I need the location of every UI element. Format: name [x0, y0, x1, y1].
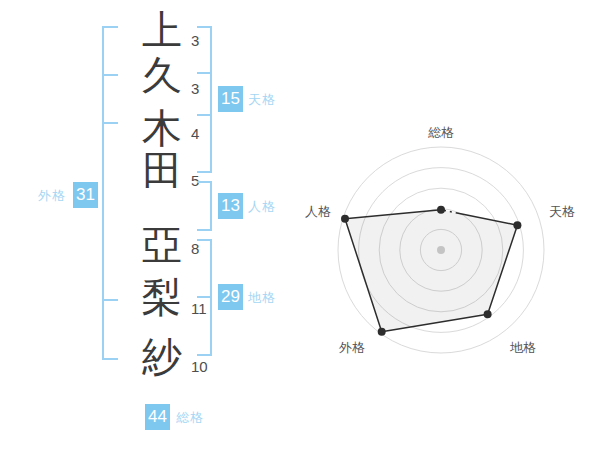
radar-axis-label: 外格: [338, 340, 365, 355]
radar-data-point: [378, 328, 386, 336]
radar-data-fill: [345, 210, 517, 332]
radar-axis-label: 地格: [510, 340, 536, 355]
radar-axis-label: 総格: [428, 125, 454, 140]
fortune-radar-chart: 総格天格地格外格人格: [0, 0, 600, 470]
radar-data-point: [437, 206, 445, 214]
radar-axis-label: 天格: [549, 204, 575, 219]
radar-data-point: [484, 310, 492, 318]
radar-data-point: [513, 221, 521, 229]
radar-center-dot: [437, 246, 445, 254]
name-fortune-panel: 上 久 木 田 亞 梨 紗 3 3 4 5 8 11 10 15 天格 13 人…: [0, 0, 600, 470]
radar-data-point: [341, 215, 349, 223]
radar-axis-label: 人格: [305, 204, 331, 219]
